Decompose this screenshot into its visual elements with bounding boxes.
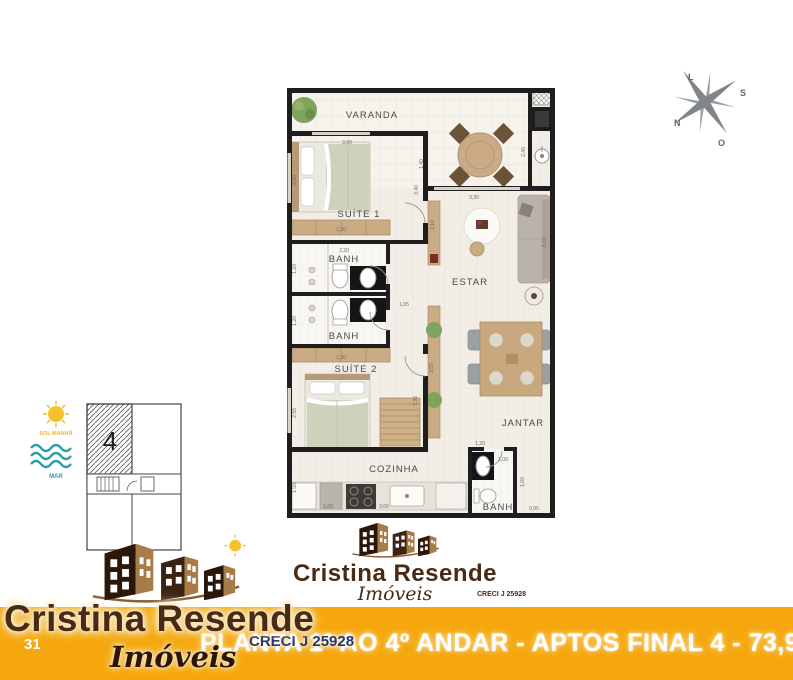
kitchen-sink: [390, 486, 424, 506]
svg-text:2,30: 2,30: [336, 355, 346, 361]
floor-plan: VARANDA SUÍTE 1 BANH BANH SUÍTE 2 ESTAR …: [284, 68, 560, 520]
sea-label: MAR: [49, 474, 63, 480]
bed-suite1: [292, 142, 370, 212]
compass-west-label: O: [718, 138, 725, 148]
svg-text:3,80: 3,80: [342, 140, 352, 146]
svg-text:1,05: 1,05: [399, 302, 409, 308]
key-plan-unit-number: 4: [103, 426, 117, 456]
room-label-jantar: JANTAR: [502, 418, 544, 429]
svg-text:1,00: 1,00: [323, 504, 333, 510]
svg-text:1,20: 1,20: [475, 441, 485, 447]
svg-text:3,55: 3,55: [429, 363, 435, 373]
room-label-banh1: BANH: [329, 254, 359, 265]
svg-text:1,20: 1,20: [292, 316, 298, 326]
svg-text:1,50: 1,50: [292, 483, 298, 493]
compass-south-label: S: [740, 88, 746, 98]
svg-text:2,10: 2,10: [430, 220, 436, 230]
svg-text:1,35: 1,35: [413, 396, 419, 406]
plant-icon: [291, 97, 317, 123]
compass-north-label: N: [674, 118, 681, 128]
compass-rose: L S N O: [650, 52, 760, 157]
sun-icon: [224, 535, 245, 556]
logo-corner-subtitle: Imóveis: [110, 640, 236, 674]
room-label-suite1: SUÍTE 1: [338, 209, 381, 220]
svg-text:3,40: 3,40: [414, 185, 420, 195]
svg-text:1,60: 1,60: [520, 477, 526, 487]
room-label-cozinha: COZINHA: [369, 464, 419, 475]
svg-text:1,00: 1,00: [498, 457, 508, 463]
orientation-icons: SOL MANHÃ MAR: [26, 400, 86, 485]
bed-suite2: [305, 374, 370, 450]
room-label-suite2: SUÍTE 2: [335, 364, 378, 375]
side-table: [470, 242, 484, 256]
svg-text:2,20: 2,20: [339, 248, 349, 254]
stove: [346, 484, 376, 509]
svg-text:2,55: 2,55: [292, 408, 298, 418]
svg-text:2,30: 2,30: [336, 227, 346, 233]
room-label-varanda: VARANDA: [346, 110, 398, 121]
sun-icon: SOL MANHÃ: [39, 401, 72, 437]
banh3-zone: [472, 452, 496, 503]
svg-text:0,95: 0,95: [529, 506, 539, 512]
svg-text:3,00: 3,00: [379, 504, 389, 510]
plant-icon: [426, 322, 442, 338]
compass-east-label: L: [688, 72, 694, 82]
logo-corner: Cristina Resende Imóveis: [0, 532, 352, 680]
room-label-banh2: BANH: [329, 331, 359, 342]
room-label-estar: ESTAR: [452, 277, 488, 288]
room-label-banh3: BANH: [483, 502, 513, 513]
svg-text:1,40: 1,40: [419, 159, 425, 169]
svg-text:2,40: 2,40: [521, 147, 527, 157]
svg-text:8,10: 8,10: [542, 237, 548, 247]
logo-corner-brand: Cristina Resende: [4, 598, 314, 640]
svg-text:1,20: 1,20: [292, 264, 298, 274]
plant-icon: [426, 392, 442, 408]
svg-text:3,30: 3,30: [469, 195, 479, 201]
sea-waves-icon: [31, 445, 71, 467]
jantar-zone: [468, 322, 550, 396]
sun-label: SOL MANHÃ: [39, 430, 72, 437]
svg-text:2,50: 2,50: [292, 175, 298, 185]
logo-center-creci: CRECI J 25928: [477, 591, 526, 598]
